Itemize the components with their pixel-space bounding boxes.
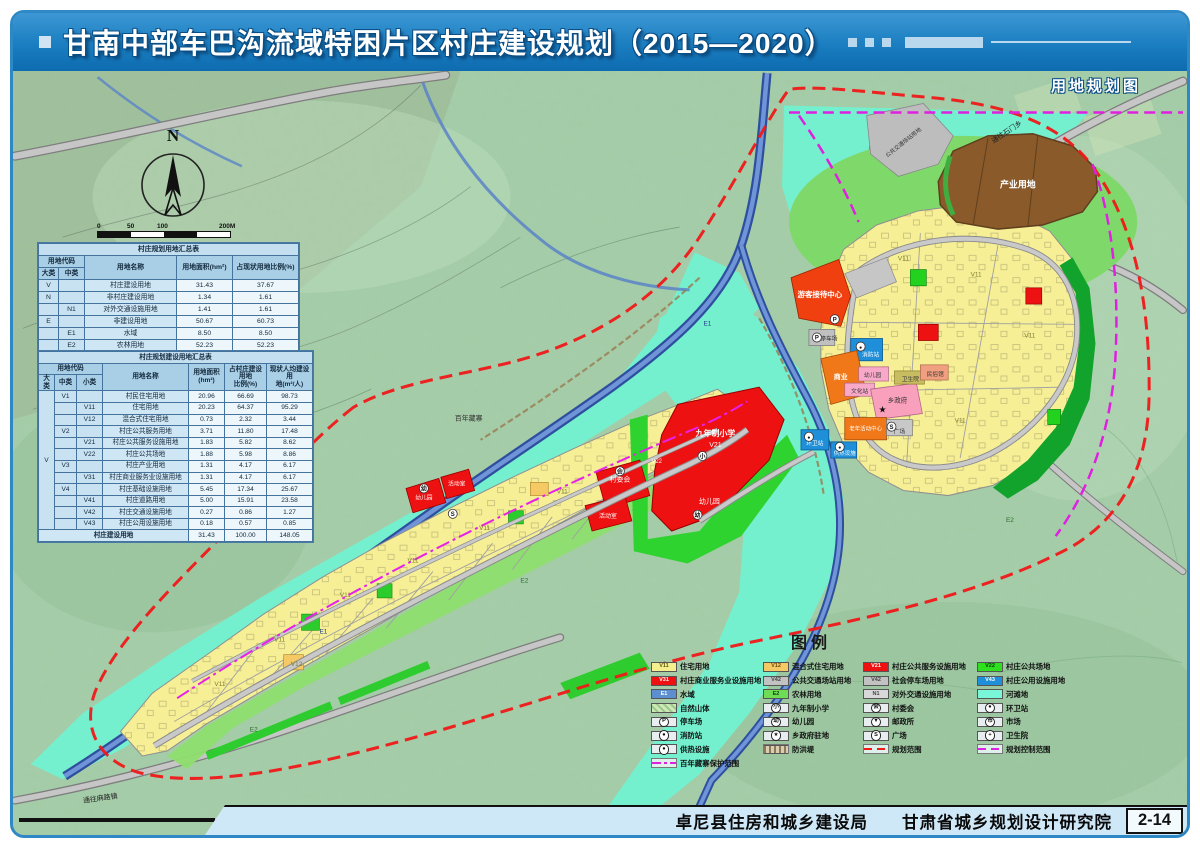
- legend-label: 停车场: [680, 716, 702, 727]
- cell: 1.41: [177, 304, 233, 316]
- map-label: V11: [214, 681, 225, 688]
- map-label: V11: [1024, 332, 1035, 339]
- cell: 3.71: [189, 426, 225, 438]
- table-row: V4村庄基础设施用地5.4517.3425.67: [39, 484, 313, 496]
- map-point-icon-glyph: 会: [617, 467, 624, 475]
- map-point-icon-glyph: ●: [807, 435, 810, 441]
- deco-square-icon: [882, 38, 891, 47]
- table-row: V42村庄交通设施用地0.270.861.27: [39, 507, 313, 519]
- cell: 村庄交通设施用地: [103, 507, 189, 519]
- map-point-icon-glyph: ●: [859, 345, 862, 351]
- map-label: E1: [319, 628, 327, 635]
- legend-label: 供热设施: [680, 744, 710, 755]
- legend-swatch: V21: [863, 662, 889, 672]
- cell: 100.00: [225, 530, 267, 542]
- cell: 5.82: [225, 437, 267, 449]
- compass-n-label: N: [167, 126, 180, 145]
- cell: [77, 460, 103, 472]
- table-row: E2农林用地52.2352.23: [39, 340, 299, 352]
- legend-item: V42社会停车场用地: [863, 675, 977, 687]
- cell: 31.43: [189, 530, 225, 542]
- table-row: 村庄建设用地31.43100.00148.05: [39, 530, 313, 542]
- map-label: 游客接待中心: [798, 289, 843, 299]
- cell: 0.57: [225, 518, 267, 530]
- legend-item: V31村庄商业服务业设施用地: [651, 675, 763, 687]
- legend-column: V21村庄公共服务设施用地V42社会停车场用地N1对外交通设施用地会村委会▼邮政…: [863, 661, 977, 769]
- table-row: V43村庄公用设施用地0.180.570.85: [39, 518, 313, 530]
- map-label: V11: [479, 525, 490, 532]
- cell: [55, 414, 77, 426]
- legend-label: 河滩地: [1006, 689, 1028, 700]
- cell: [59, 316, 85, 328]
- map-label: 乡政府: [888, 395, 908, 404]
- legend-label: 防洪堤: [792, 744, 814, 755]
- legend-swatch: V31: [651, 676, 677, 686]
- scale-tick: 100: [157, 223, 168, 230]
- legend-column: V11住宅用地V31村庄商业服务业设施用地E1水域自然山体P停车场●消防站●供热…: [651, 661, 763, 769]
- map-label: 文化站: [851, 387, 868, 395]
- scale-tick: 200M: [219, 223, 235, 230]
- map-label: V11: [898, 255, 909, 262]
- cell: 8.86: [267, 449, 313, 461]
- cell: 52.23: [233, 340, 299, 352]
- legend-label: 规划范围: [892, 744, 922, 755]
- legend-swatch: V12: [763, 662, 789, 672]
- table-title: 村庄规划建设用地汇总表: [39, 352, 313, 364]
- legend-icon: ▼: [863, 717, 889, 727]
- legend-label: 规划控制范围: [1006, 744, 1050, 755]
- map-point-icon-glyph: 小: [699, 452, 707, 460]
- cell: 用地代码: [39, 256, 85, 268]
- cell: 3.44: [267, 414, 313, 426]
- cell: V42: [77, 507, 103, 519]
- cell: V31: [77, 472, 103, 484]
- legend-item: E2农林用地: [763, 689, 863, 701]
- map-point-icon-glyph: P: [833, 317, 837, 323]
- legend-label: 自然山体: [680, 703, 710, 714]
- legend-label: 对外交通设施用地: [892, 689, 951, 700]
- legend-item: +卫生院: [977, 730, 1099, 742]
- cell: 23.58: [267, 495, 313, 507]
- cell: 1.88: [189, 449, 225, 461]
- deco-square-icon: [848, 38, 857, 47]
- legend-hatch-swatch: [651, 703, 677, 713]
- legend-title: 图例: [791, 629, 1190, 653]
- cell: 148.05: [267, 530, 313, 542]
- cell: 17.34: [225, 484, 267, 496]
- map-label: E2: [520, 578, 528, 585]
- cell: 村庄道路用地: [103, 495, 189, 507]
- cell: E1: [59, 328, 85, 340]
- footer-agencies: 卓尼县住房和城乡建设局甘肃省城乡规划设计研究院: [675, 809, 1112, 833]
- sheet-number: 2-14: [1126, 808, 1183, 834]
- cell: 中类: [55, 375, 77, 391]
- cell: V: [39, 391, 55, 530]
- cell: [55, 518, 77, 530]
- cell: 11.80: [225, 426, 267, 438]
- cell: [55, 472, 77, 484]
- legend-label: 九年制小学: [792, 703, 829, 714]
- legend-item: V42公共交通场站用地: [763, 675, 863, 687]
- legend-swatch: V43: [977, 676, 1003, 686]
- cell: V: [39, 280, 59, 292]
- cell: 用地面积(hm²): [177, 256, 233, 280]
- legend-item: ●环卫站: [977, 702, 1099, 714]
- legend-swatch: E1: [651, 689, 677, 699]
- map-label: V11: [557, 488, 568, 495]
- cell: 用地名称: [103, 363, 189, 391]
- cell: 用地代码: [39, 363, 103, 375]
- cell: 8.50: [177, 328, 233, 340]
- table-row: V12混合式住宅用地0.732.323.44: [39, 414, 313, 426]
- legend-label: 消防站: [680, 730, 702, 741]
- cell: V12: [77, 414, 103, 426]
- legend-label: 百年藏寨保护范围: [680, 758, 739, 769]
- cell: V41: [77, 495, 103, 507]
- legend-label: 邮政所: [892, 716, 914, 727]
- legend-swatch: V11: [651, 662, 677, 672]
- cell: 用地面积 (hm²): [189, 363, 225, 391]
- cell: 1.61: [233, 304, 299, 316]
- cell: 52.23: [177, 340, 233, 352]
- map-label: 幼儿园: [864, 371, 881, 379]
- table-title-row: 村庄规划用地汇总表: [39, 244, 299, 256]
- legend-swatch: [977, 689, 1003, 699]
- cell: [59, 280, 85, 292]
- legend-icon: 市: [977, 717, 1003, 727]
- cell: V4: [55, 484, 77, 496]
- legend-item: 会村委会: [863, 702, 977, 714]
- page-title: 甘南中部车巴沟流域特困片区村庄建设规划（2015—2020）: [63, 22, 834, 62]
- cell: 5.45: [189, 484, 225, 496]
- cell: [39, 340, 59, 352]
- cell: 0.85: [267, 518, 313, 530]
- map-label: V12: [291, 661, 303, 668]
- table-row: VV1村民住宅用地20.9666.6998.73: [39, 391, 313, 403]
- cell: [55, 507, 77, 519]
- cell: 非村庄建设用地: [85, 292, 177, 304]
- legend-label: 乡政府驻地: [792, 730, 829, 741]
- table-row: V11住宅用地20.2364.3795.29: [39, 402, 313, 414]
- legend-swatch: N1: [863, 689, 889, 699]
- landuse-summary-table: 村庄规划用地汇总表用地代码用地名称用地面积(hm²)占现状用地比例(%)大类中类…: [38, 243, 299, 364]
- cell: 60.73: [233, 316, 299, 328]
- scale-ticks: 0 50 100 200M: [97, 223, 247, 231]
- map-label: E2: [250, 727, 258, 734]
- legend-column: V12混合式住宅用地V42公共交通场站用地E2农林用地小九年制小学幼幼儿园★乡政…: [763, 661, 863, 769]
- scale-bar: 0 50 100 200M: [97, 223, 247, 238]
- legend-item: V21村庄公共服务设施用地: [863, 661, 977, 673]
- legend-label: 水域: [680, 689, 695, 700]
- legend-label: 村庄公共服务设施用地: [892, 661, 966, 672]
- construction-landuse-table: 村庄规划建设用地汇总表用地代码用地名称用地面积 (hm²)占村庄建设用地 比例(…: [38, 351, 313, 542]
- legend-line-swatch: [763, 744, 789, 754]
- map-label: E2: [1006, 517, 1014, 524]
- scale-tick: 50: [127, 223, 134, 230]
- legend-item: 市市场: [977, 716, 1099, 728]
- cell: 4.17: [225, 460, 267, 472]
- legend-label: 农林用地: [792, 689, 822, 700]
- cell: [59, 292, 85, 304]
- map-label: 卫生院: [902, 375, 919, 383]
- legend-item: V11住宅用地: [651, 661, 763, 673]
- map-star-icon: ★: [879, 404, 887, 414]
- cell: 混合式住宅用地: [103, 414, 189, 426]
- table-title-row: 村庄规划建设用地汇总表: [39, 352, 313, 364]
- table-row: V22村庄公共场地1.885.988.86: [39, 449, 313, 461]
- title-lead-square-icon: [39, 36, 51, 48]
- cell: 现状人均建设用 地(m²/人): [267, 363, 313, 391]
- legend-label: 村委会: [892, 703, 914, 714]
- legend-label: 混合式住宅用地: [792, 661, 844, 672]
- cell: [55, 449, 77, 461]
- cell: 17.48: [267, 426, 313, 438]
- cell: 1.31: [189, 472, 225, 484]
- deco-square-icon: [865, 38, 874, 47]
- legend-swatch: V22: [977, 662, 1003, 672]
- map-label: 民俗馆: [927, 370, 944, 378]
- legend-label: 广场: [892, 730, 907, 741]
- cell: 20.23: [189, 402, 225, 414]
- cell: 25.67: [267, 484, 313, 496]
- map-label: 幼儿园: [415, 494, 432, 502]
- legend-icon: +: [977, 731, 1003, 741]
- north-compass-icon: N: [141, 125, 205, 229]
- cell: 村庄公共场地: [103, 449, 189, 461]
- cell: 8.50: [233, 328, 299, 340]
- legend-label: 市场: [1006, 716, 1021, 727]
- cell: 中类: [59, 268, 85, 280]
- legend-label: 村庄公共场地: [1006, 661, 1050, 672]
- legend-item: ★乡政府驻地: [763, 730, 863, 742]
- cell: 村庄基础设施用地: [103, 484, 189, 496]
- legend-icon: S: [863, 731, 889, 741]
- map-label: E1: [703, 320, 711, 327]
- legend-icon: 小: [763, 703, 789, 713]
- legend-icon: P: [651, 717, 677, 727]
- legend-item: 防洪堤: [763, 744, 863, 756]
- legend-item: 河滩地: [977, 689, 1099, 701]
- cell: 15.91: [225, 495, 267, 507]
- cell: [39, 328, 59, 340]
- cell: [77, 391, 103, 403]
- legend-item: 幼幼儿园: [763, 716, 863, 728]
- table-row: V31村庄商业服务业设施用地1.314.176.17: [39, 472, 313, 484]
- legend-item: V12混合式住宅用地: [763, 661, 863, 673]
- legend-line-swatch: [651, 758, 677, 768]
- cell: 6.17: [267, 472, 313, 484]
- map-label: 消防站: [862, 351, 879, 359]
- table-row: E1水域8.508.50: [39, 328, 299, 340]
- map-subtitle: 用地规划图: [1051, 75, 1141, 96]
- table-row: V21村庄公共服务设施用地1.835.828.62: [39, 437, 313, 449]
- cell: N1: [59, 304, 85, 316]
- map-label: 老年活动中心: [849, 425, 882, 433]
- cell: V2: [55, 426, 77, 438]
- legend-label: 环卫站: [1006, 703, 1028, 714]
- cell: 8.62: [267, 437, 313, 449]
- cell: 农林用地: [85, 340, 177, 352]
- table-row: E非建设用地50.6760.73: [39, 316, 299, 328]
- legend-swatch: V42: [763, 676, 789, 686]
- cell: V1: [55, 391, 77, 403]
- cell: 村庄公共服务用地: [103, 426, 189, 438]
- legend-icon: ●: [977, 703, 1003, 713]
- map-label: 活动室: [599, 512, 617, 520]
- plan-sheet: 甘南中部车巴沟流域特困片区村庄建设规划（2015—2020） 用地规划图: [0, 0, 1200, 848]
- table-row: N1对外交通设施用地1.411.61: [39, 304, 299, 316]
- cell: 2.32: [225, 414, 267, 426]
- cell: V43: [77, 518, 103, 530]
- cell: 大类: [39, 268, 59, 280]
- legend-item: S广场: [863, 730, 977, 742]
- cell: 村庄产业用地: [103, 460, 189, 472]
- cell: 村民住宅用地: [103, 391, 189, 403]
- cell: 98.73: [267, 391, 313, 403]
- cell: 64.37: [225, 402, 267, 414]
- cell: 5.00: [189, 495, 225, 507]
- cell: 50.67: [177, 316, 233, 328]
- map-label: V21: [709, 442, 721, 449]
- map-label: 停车场: [820, 334, 837, 342]
- cell: 66.69: [225, 391, 267, 403]
- legend-item: 小九年制小学: [763, 702, 863, 714]
- cell: 1.83: [189, 437, 225, 449]
- cell: 村庄公共服务设施用地: [103, 437, 189, 449]
- cell: V11: [77, 402, 103, 414]
- legend-item: 百年藏寨保护范围: [651, 757, 763, 769]
- cell: 1.27: [267, 507, 313, 519]
- legend-item: 规划控制范围: [977, 744, 1099, 756]
- legend-item: 规划范围: [863, 744, 977, 756]
- legend-item: V22村庄公共场地: [977, 661, 1099, 673]
- table-header-row: 用地代码用地名称用地面积(hm²)占现状用地比例(%): [39, 256, 299, 268]
- cell: 5.98: [225, 449, 267, 461]
- legend-label: 幼儿园: [792, 716, 814, 727]
- legend-item: E1水域: [651, 689, 763, 701]
- legend-item: N1对外交通设施用地: [863, 689, 977, 701]
- cell: [39, 304, 59, 316]
- cell: 0.73: [189, 414, 225, 426]
- footer-rule: [19, 818, 215, 822]
- map-label: 九年制小学: [695, 428, 736, 438]
- cell: 村庄商业服务业设施用地: [103, 472, 189, 484]
- map-label: 百年藏寨: [455, 414, 483, 423]
- legend-label: 公共交通场站用地: [792, 675, 851, 686]
- map-point-icon-glyph: S: [451, 512, 455, 518]
- map-point-icon-glyph: 幼: [421, 485, 427, 493]
- cell: N: [39, 292, 59, 304]
- table-row: V41村庄道路用地5.0015.9123.58: [39, 495, 313, 507]
- title-banner: 甘南中部车巴沟流域特困片区村庄建设规划（2015—2020）: [13, 13, 1187, 71]
- table-row: V3村庄产业用地1.314.176.17: [39, 460, 313, 472]
- scale-tick: 0: [97, 223, 101, 230]
- cell: 村庄建设用地: [39, 530, 189, 542]
- legend-item: P停车场: [651, 716, 763, 728]
- legend-label: 社会停车场用地: [892, 675, 944, 686]
- cell: 37.67: [233, 280, 299, 292]
- cell: 小类: [77, 375, 103, 391]
- legend-label: 住宅用地: [680, 661, 710, 672]
- agency-secondary: 甘肃省城乡规划设计研究院: [902, 814, 1112, 832]
- map-label: V11: [407, 557, 418, 564]
- cell: [55, 402, 77, 414]
- map-label: V11: [955, 418, 966, 425]
- legend-icon: ●: [651, 731, 677, 741]
- legend-line-swatch: [977, 744, 1003, 754]
- cell: 对外交通设施用地: [85, 304, 177, 316]
- legend-icon: ★: [763, 731, 789, 741]
- cell: V22: [77, 449, 103, 461]
- legend-icon: 会: [863, 703, 889, 713]
- cell: [55, 495, 77, 507]
- map-frame: 甘南中部车巴沟流域特困片区村庄建设规划（2015—2020） 用地规划图: [10, 10, 1190, 838]
- cell: V21: [77, 437, 103, 449]
- map-label: 产业用地: [1000, 178, 1036, 189]
- legend-swatch: E2: [763, 689, 789, 699]
- banner-decoration: [848, 37, 1167, 48]
- map-label: 商业: [834, 372, 848, 381]
- legend-icon: 幼: [763, 717, 789, 727]
- cell: [55, 437, 77, 449]
- legend-item: V43村庄公用设施用地: [977, 675, 1099, 687]
- cell: V3: [55, 460, 77, 472]
- cell: 住宅用地: [103, 402, 189, 414]
- legend-item: ●供热设施: [651, 744, 763, 756]
- legend-label: 村庄公用设施用地: [1006, 675, 1065, 686]
- map-label: V22: [651, 459, 662, 465]
- legend-swatch: V42: [863, 676, 889, 686]
- map-label: 幼儿园: [699, 497, 720, 506]
- map-label: 活动室: [448, 479, 465, 487]
- footer-panel: 卓尼县住房和城乡建设局甘肃省城乡规划设计研究院 2-14: [205, 805, 1187, 835]
- table-header-row: 用地代码用地名称用地面积 (hm²)占村庄建设用地 比例(%)现状人均建设用 地…: [39, 363, 313, 375]
- map-point-icon-glyph: S: [890, 425, 894, 431]
- cell: 占村庄建设用地 比例(%): [225, 363, 267, 391]
- legend-column: V22村庄公共场地V43村庄公用设施用地河滩地●环卫站市市场+卫生院规划控制范围: [977, 661, 1099, 769]
- table-title: 村庄规划用地汇总表: [39, 244, 299, 256]
- cell: 4.17: [225, 472, 267, 484]
- table-row: V2村庄公共服务用地3.7111.8017.48: [39, 426, 313, 438]
- cell: [77, 484, 103, 496]
- cell: 村庄公用设施用地: [103, 518, 189, 530]
- deco-bar: [905, 37, 983, 48]
- cell: 95.29: [267, 402, 313, 414]
- cell: 0.86: [225, 507, 267, 519]
- cell: 用地名称: [85, 256, 177, 280]
- cell: [77, 426, 103, 438]
- table-row: N非村庄建设用地1.341.61: [39, 292, 299, 304]
- footer: 卓尼县住房和城乡建设局甘肃省城乡规划设计研究院 2-14: [13, 805, 1187, 835]
- cell: 1.31: [189, 460, 225, 472]
- legend-label: 卫生院: [1006, 730, 1028, 741]
- map-label: V11: [340, 592, 351, 599]
- cell: 水域: [85, 328, 177, 340]
- cell: 村庄建设用地: [85, 280, 177, 292]
- map-point-icon-glyph: P: [815, 336, 819, 342]
- legend-label: 村庄商业服务业设施用地: [680, 675, 761, 686]
- legend-item: ●消防站: [651, 730, 763, 742]
- legend-icon: ●: [651, 744, 677, 754]
- cell: E2: [59, 340, 85, 352]
- map-label: V11: [274, 636, 285, 643]
- cell: 1.61: [233, 292, 299, 304]
- cell: 20.96: [189, 391, 225, 403]
- scale-segments: [97, 231, 231, 238]
- cell: E: [39, 316, 59, 328]
- cell: 大类: [39, 375, 55, 391]
- map-label: V11: [971, 272, 982, 279]
